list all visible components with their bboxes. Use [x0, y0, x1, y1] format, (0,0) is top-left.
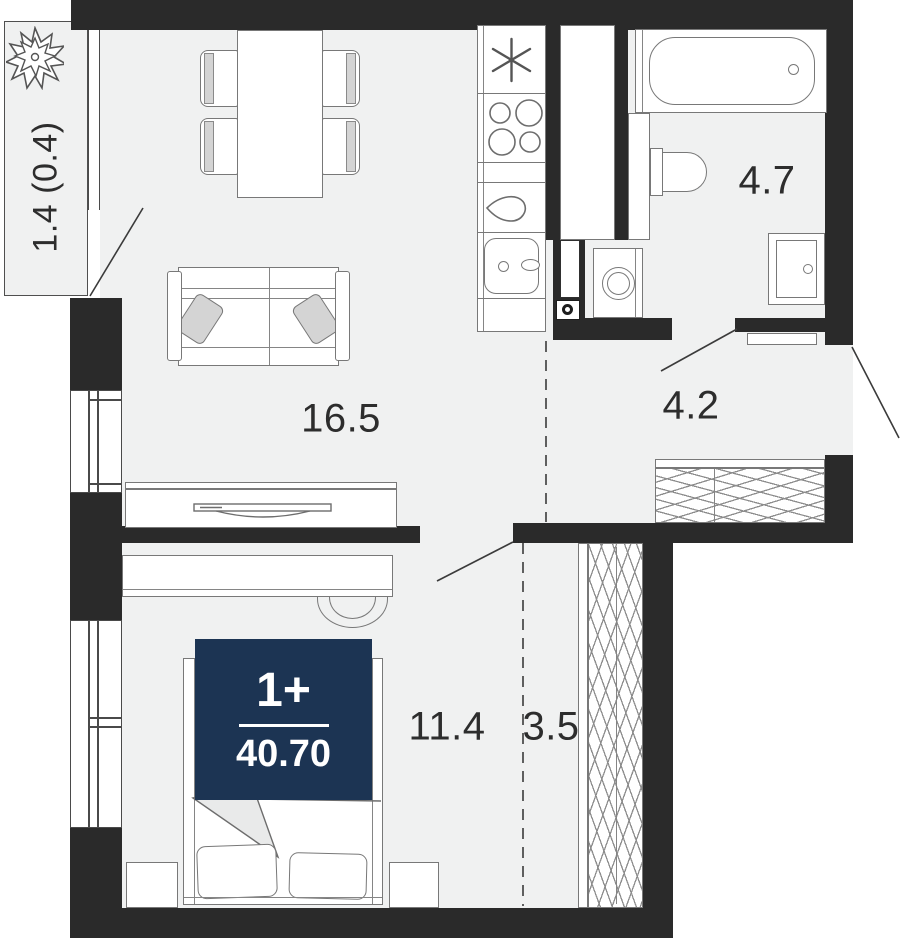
fridge: [478, 26, 545, 94]
nightstand: [389, 862, 439, 908]
drop-icon: [478, 183, 545, 232]
dining-chair: [322, 50, 360, 107]
bed-pillow: [288, 852, 367, 900]
wardrobe-rod-line: [616, 547, 617, 904]
shaft: [560, 25, 615, 240]
hall-wardrobe: [655, 459, 825, 523]
sofa-center-line: [269, 268, 270, 365]
chair-back: [346, 53, 356, 104]
hall-area-label: 4.2: [662, 384, 719, 429]
wall-bath-bottom-left: [553, 318, 672, 340]
sofa-armrest: [167, 271, 182, 361]
bathtub: [635, 29, 827, 113]
wall-bath-bottom-right: [735, 318, 827, 332]
living-area-label: 16.5: [301, 397, 381, 442]
chair-back: [346, 121, 356, 172]
kitchen-units: [477, 25, 546, 332]
wardrobe-hanging-icon: [588, 543, 643, 908]
bathtub-drain: [788, 64, 799, 75]
wall-bath-left: [615, 25, 628, 240]
dining-chair: [200, 50, 238, 107]
sofa-back-line: [179, 288, 338, 289]
balcony-glazing: [88, 30, 100, 210]
sofa: [167, 267, 350, 366]
floor-plan: 1+ 40.70 1.4 (0.4) 16.5 4.7 4.2 11.4 3.5: [0, 0, 903, 941]
bedroom-window: [70, 620, 122, 828]
wall-corridor-right: [643, 543, 673, 908]
bathroom-sink-drain: [803, 264, 813, 274]
window-sash-line: [88, 726, 121, 728]
dining-chair: [200, 118, 238, 175]
apartment-badge: 1+ 40.70: [195, 639, 372, 800]
kitchen-cabinet: [478, 183, 545, 233]
window-frame-line: [97, 391, 99, 492]
wardrobe-divider-line: [714, 469, 715, 522]
badge-divider: [239, 724, 329, 727]
entry-door-swing-line: [852, 347, 899, 438]
bathtub-edge-line: [642, 30, 643, 112]
dining-chair: [322, 118, 360, 175]
sink-drain: [498, 261, 509, 272]
corridor-area-label: 3.5: [522, 705, 579, 750]
wall-bottom: [70, 908, 673, 938]
stove: [478, 94, 545, 163]
balcony-door-opening: [88, 210, 100, 298]
plumbing-box: [628, 113, 650, 240]
wall-hall-bottom: [513, 523, 853, 543]
desk: [122, 555, 393, 597]
wall-bedroom-top: [70, 526, 420, 543]
sofa-seat-line: [179, 347, 338, 348]
sofa-armrest: [335, 271, 350, 361]
washer-drum-inner: [607, 272, 630, 295]
kitchen-lower-unit: [478, 299, 545, 331]
stove-burners-icon: [478, 94, 545, 162]
chair-back: [204, 53, 214, 104]
bed-pillow: [196, 844, 278, 900]
wardrobe-top-rail: [655, 459, 825, 468]
window-sash-line: [88, 399, 121, 401]
floor-entry-opening: [827, 345, 853, 455]
vent-hatch-ring: [562, 304, 573, 315]
wall-kitchen-right: [546, 25, 560, 240]
bathroom-door-leaf: [560, 240, 580, 298]
toilet-bowl: [662, 152, 707, 192]
tv-stand-body: [125, 489, 397, 528]
tv-icon: [126, 490, 396, 527]
tv-stand: [125, 482, 397, 528]
nightstand: [126, 862, 178, 908]
wardrobe-hanging-icon: [655, 468, 825, 523]
living-window: [70, 390, 122, 493]
faucet-icon: [521, 259, 540, 271]
wall-right-upper: [825, 30, 853, 345]
window-frame-line: [88, 391, 90, 492]
bedroom-area-label: 11.4: [409, 705, 486, 750]
washer-panel-line: [635, 249, 636, 317]
washing-machine: [593, 248, 643, 318]
bathroom-door-mat: [747, 333, 817, 345]
corridor-wardrobe: [578, 543, 643, 908]
chair-back: [204, 121, 214, 172]
dining-table: [237, 30, 323, 198]
plant-icon: [6, 26, 64, 90]
headboard-line: [184, 897, 382, 898]
window-frame-line: [88, 621, 90, 827]
vent-hatch: [556, 300, 580, 320]
balcony-area-label: 1.4 (0.4): [27, 121, 66, 252]
window-frame-line: [97, 621, 99, 827]
kitchen-counter: [478, 163, 545, 183]
snowflake-icon: [478, 26, 545, 93]
bathroom-sink: [768, 233, 825, 305]
window-sash-line: [88, 717, 121, 719]
desk-edge-line: [123, 589, 392, 590]
kitchen-sink-unit: [478, 233, 545, 299]
window-sash-line: [88, 483, 121, 485]
wall-top: [71, 0, 853, 30]
bathroom-area-label: 4.7: [738, 159, 795, 204]
tv-stand-top: [125, 482, 397, 489]
badge-rooms-label: 1+: [256, 667, 311, 715]
badge-area-value: 40.70: [236, 735, 331, 773]
